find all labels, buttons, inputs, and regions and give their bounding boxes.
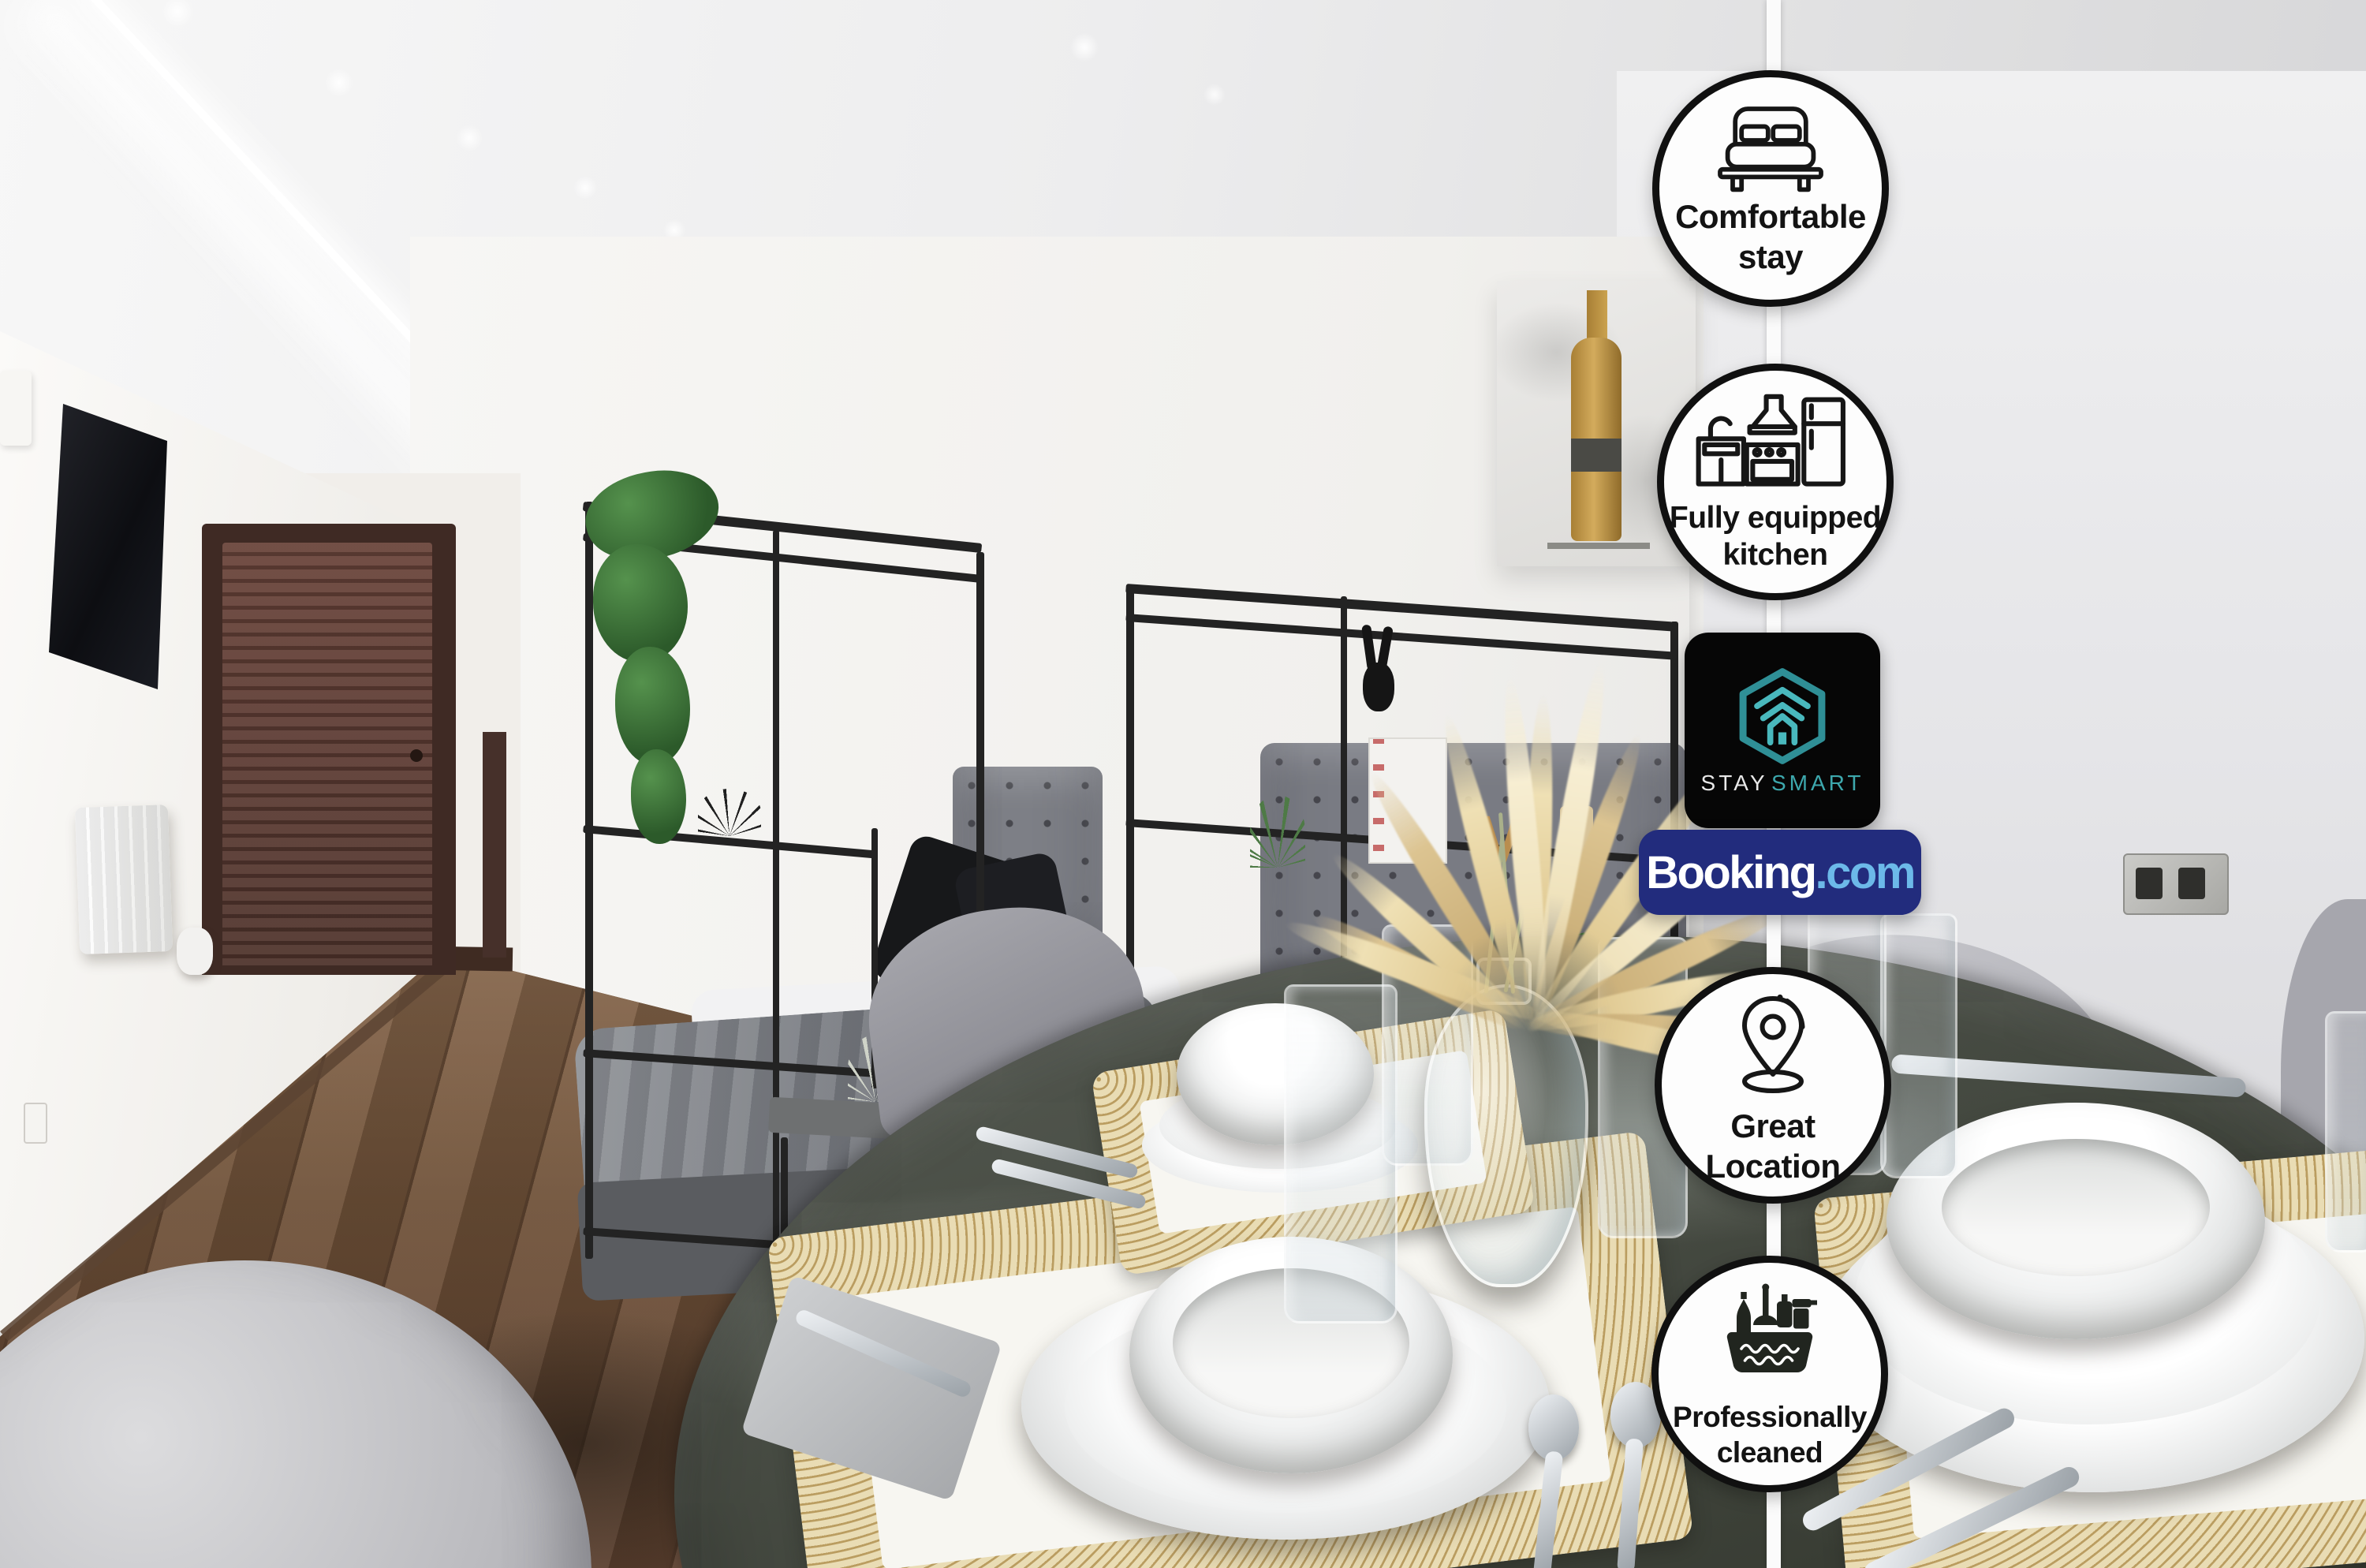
white-cylinder (177, 928, 213, 975)
light-switch (24, 1103, 47, 1144)
badge-label-line2: Location (1706, 1147, 1841, 1186)
badge-great-location: Great Location (1655, 967, 1891, 1204)
side-architrave (483, 732, 506, 958)
badge-label-line1: Comfortable (1675, 197, 1866, 237)
kitchen-icon (1692, 390, 1858, 500)
badge-comfortable-stay: Comfortable stay (1652, 70, 1889, 307)
art-base-line (1547, 543, 1650, 549)
cleaning-caddy-icon (1704, 1278, 1836, 1400)
stay-word: STAY (1701, 771, 1768, 795)
stay-smart-wordmark: STAY SMART (1701, 771, 1864, 796)
wall-mounted-tv (49, 404, 167, 689)
drinking-glass (1880, 913, 1957, 1178)
badge-label-line2: stay (1738, 237, 1803, 277)
booking-word: Booking (1646, 846, 1815, 899)
bowl-cavity (1942, 1139, 2210, 1276)
shelf-post (585, 502, 593, 1259)
art-bottle-band (1571, 439, 1621, 472)
stay-smart-hexagon-icon (1732, 666, 1833, 771)
black-plant-decor (698, 789, 761, 836)
badge-label-line1: Great (1730, 1107, 1815, 1146)
drinking-glass (2325, 1011, 2366, 1253)
door-handle (410, 749, 423, 762)
smart-word: SMART (1771, 771, 1864, 795)
badge-label-line1: Fully equipped (1670, 500, 1881, 537)
promo-screenshot: VI (0, 0, 2366, 1568)
radiator (75, 805, 173, 954)
wall-socket (2123, 853, 2229, 915)
badge-label-line2: kitchen (1722, 537, 1827, 574)
booking-com-logo: Booking.com (1639, 830, 1921, 915)
badge-professionally-cleaned: Professionally cleaned (1651, 1256, 1888, 1492)
bed-icon (1707, 100, 1834, 197)
stay-smart-logo: STAY SMART (1685, 633, 1880, 828)
entrance-door (222, 543, 432, 965)
location-pin-icon (1714, 984, 1832, 1107)
badge-label-line2: cleaned (1717, 1435, 1823, 1470)
thermostat-panel (0, 371, 32, 446)
badge-label-line1: Professionally (1673, 1400, 1867, 1435)
badge-fully-equipped-kitchen: Fully equipped kitchen (1657, 364, 1894, 600)
dotcom-word: .com (1816, 846, 1914, 899)
socket-outlet (2136, 868, 2163, 899)
socket-outlet (2178, 868, 2205, 899)
shelf-post (773, 530, 779, 1264)
